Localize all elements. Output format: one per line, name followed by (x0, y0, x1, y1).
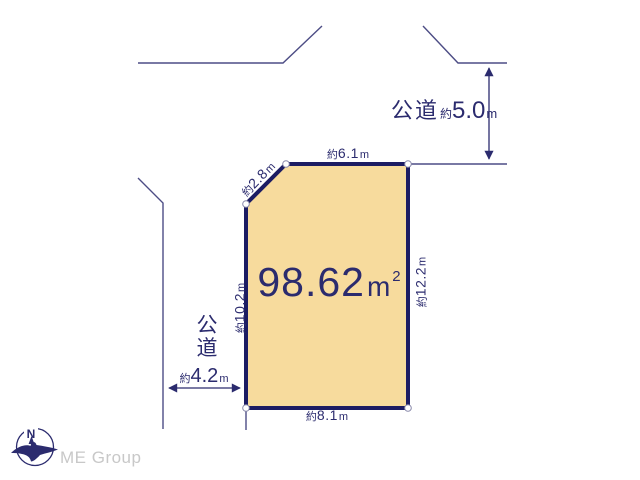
road-name-char: 公 (195, 315, 219, 338)
compass-icon: N (11, 427, 58, 466)
dimension-unit: m (339, 412, 348, 423)
road-label-left-width: 約4.2m (170, 366, 238, 386)
dimension-value: 6.1 (338, 146, 359, 160)
approx-prefix: 約 (237, 322, 248, 333)
dimension-value: 12.2 (414, 267, 428, 296)
area-unit-superscript: 2 (392, 269, 401, 284)
area-value: 98.62 (257, 262, 365, 303)
road-label-top: 公道約5.0m (391, 99, 497, 123)
brand-wordmark: ME Group (60, 449, 141, 466)
road-outline-left (138, 178, 163, 429)
road-width-unit: m (486, 107, 497, 120)
dimension-value: 10.2 (233, 293, 247, 322)
dimension-unit: m (418, 257, 429, 266)
approx-prefix: 約 (327, 150, 338, 161)
dimension-label-right-edge: 約12.2m (414, 257, 429, 307)
vertex-marker (243, 201, 250, 208)
approx-prefix: 約 (418, 296, 429, 307)
road-width-value: 5.0 (452, 99, 485, 123)
road-outline-top-left (138, 26, 322, 63)
parcel-area-label: 98.62m2 (250, 262, 408, 314)
road-name: 公道 (391, 100, 439, 122)
approx-prefix: 約 (180, 374, 191, 385)
dimension-value: 8.1 (317, 408, 338, 422)
dimension-label-left-edge: 約10.2m (233, 283, 248, 333)
road-width-value: 4.2 (191, 366, 219, 386)
dimension-label-top-edge: 約6.1m (316, 146, 380, 161)
dimension-unit: m (360, 150, 369, 161)
compass-north-label: N (27, 427, 36, 441)
vertex-marker (405, 161, 412, 168)
road-outline-top-right (423, 26, 507, 63)
dimension-label-bottom-edge: 約8.1m (295, 408, 359, 423)
road-width-unit: m (219, 374, 228, 385)
area-unit: m (367, 273, 391, 301)
site-plan-canvas: N 約6.1m 約2.8m 約12.2m 約10.2m 約8.1m 98.62m… (0, 0, 640, 480)
road-label-left-name: 公 道 (195, 315, 219, 360)
vertex-marker (405, 405, 412, 412)
bird-logo-icon (11, 442, 58, 461)
vertex-marker (243, 405, 250, 412)
road-name-char: 道 (195, 338, 219, 361)
approx-prefix: 約 (440, 108, 452, 120)
approx-prefix: 約 (306, 412, 317, 423)
vertex-marker (283, 161, 290, 168)
dimension-unit: m (237, 283, 248, 292)
